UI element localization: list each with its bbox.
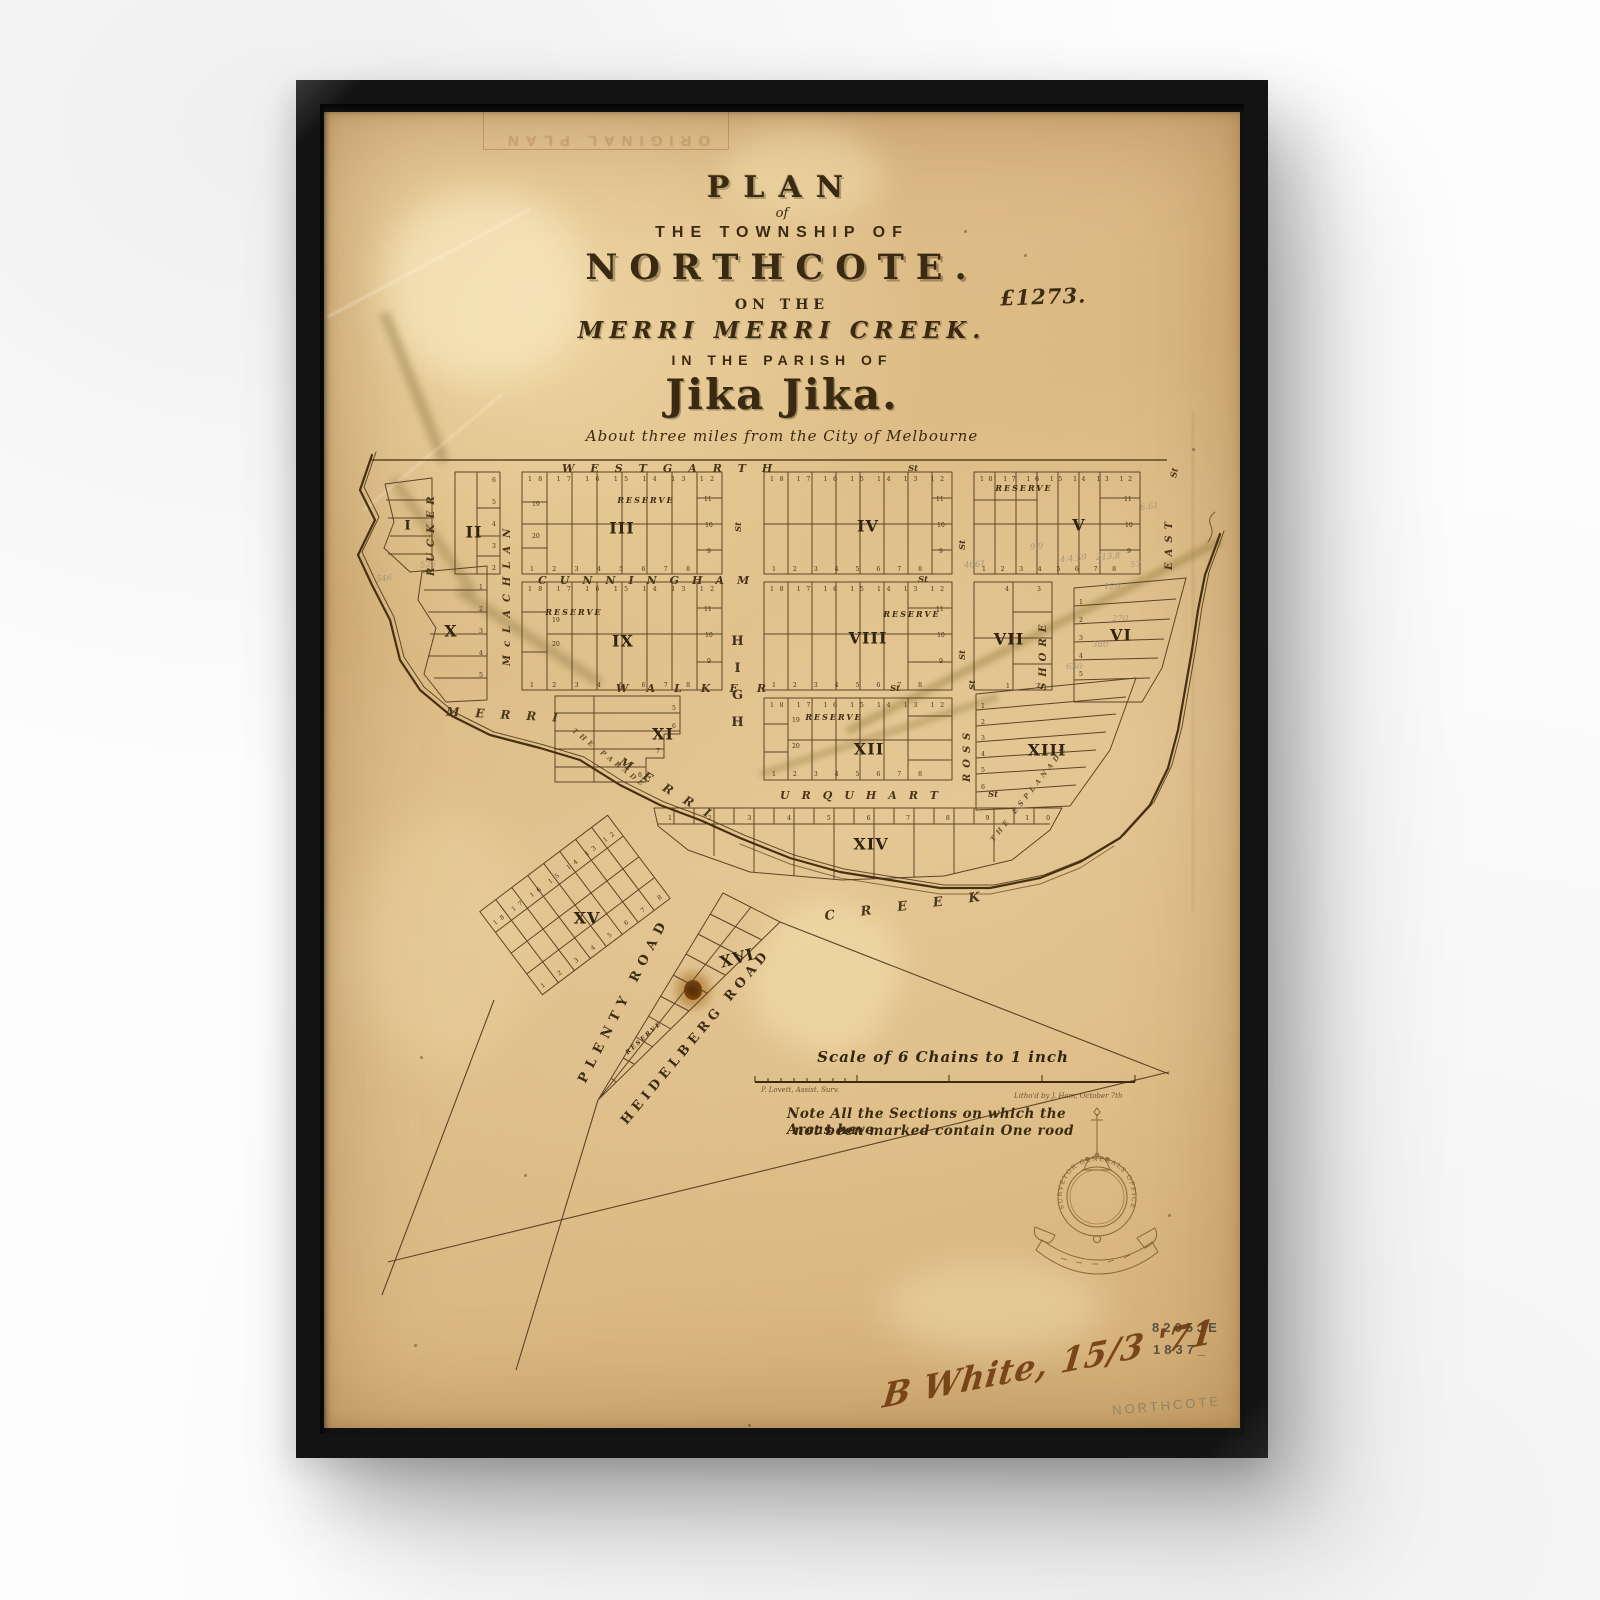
lot-number: 5 — [672, 705, 676, 712]
speck — [420, 1056, 423, 1059]
paper-stain — [884, 1262, 1104, 1352]
paper-crease — [327, 208, 531, 318]
street-high-st: St — [734, 522, 744, 532]
lot-number: 5 — [492, 499, 496, 506]
lot-number: 10 — [705, 632, 713, 639]
lot-number: 9 — [939, 548, 943, 555]
lot-number: 9 — [1127, 548, 1131, 555]
speck — [524, 1174, 527, 1177]
reserve-label: RESERVE — [883, 609, 940, 619]
lot-number: 3 — [981, 735, 985, 742]
section-VII: VII — [994, 630, 1024, 649]
section-IX: IX — [612, 632, 634, 651]
map-paper: ORIGINAL PLAN PLAN of THE TOWNSHIP OF NO… — [324, 112, 1240, 1428]
lot-number: 20 — [532, 533, 540, 540]
lot-number: 10 — [937, 522, 945, 529]
road-the-parade: THE PARADE — [570, 726, 648, 790]
lot-number: 3 — [492, 543, 496, 550]
creek-label-merri-1: MERRI — [446, 705, 575, 726]
section-VIII: VIII — [849, 629, 888, 648]
ink-signature: B White, 15/3 '71 — [881, 1311, 1217, 1416]
lot-row: 1 2 3 4 5 6 7 8 — [772, 771, 922, 778]
lot-number: 1 — [479, 584, 483, 591]
speck — [414, 1344, 417, 1347]
lot-row: 18 17 16 15 14 13 12 — [528, 476, 714, 483]
seal-crown — [1082, 1156, 1112, 1170]
lot-number: 3 — [1079, 635, 1083, 642]
block-I — [384, 478, 432, 572]
road-plenty: PLENTY ROAD — [575, 914, 672, 1085]
lot-number: 5 — [479, 672, 483, 679]
block-VIII — [764, 582, 952, 690]
lot-number: 9 — [707, 548, 711, 555]
lot-number: 5 — [1079, 671, 1083, 678]
section-XV: XV — [574, 909, 601, 928]
lot-number: 8 — [638, 772, 642, 779]
lot-number: 19 — [532, 501, 540, 508]
reserve-label: RESERVE — [545, 607, 602, 617]
section-XIII: XIII — [1028, 741, 1067, 760]
section-I: I — [404, 519, 411, 534]
block-VI — [1074, 578, 1186, 702]
speck — [964, 230, 967, 233]
lot-number: 4 — [1079, 653, 1083, 660]
seal-ring-inner — [1067, 1167, 1127, 1227]
street-shore: SHORE — [1038, 606, 1049, 690]
lot-number: 10 — [937, 632, 945, 639]
graphite-note: 4661 — [964, 559, 986, 570]
street-westgarth-st: St — [908, 464, 918, 474]
title-subtitle: About three miles from the City of Melbo… — [324, 427, 1240, 445]
olive-streak — [845, 537, 1223, 735]
lot-number: 1 — [1079, 599, 1083, 606]
lot-row: 18 17 16 15 14 13 12 — [770, 476, 944, 483]
lot-number: 9 — [939, 658, 943, 665]
graphite-note: 4.4.59 — [1060, 553, 1088, 565]
title-of: of — [324, 206, 1240, 221]
lot-row: 1 2 3 4 5 6 7 8 — [530, 566, 690, 573]
lot-number: 5 — [981, 767, 985, 774]
paper-stain — [731, 879, 921, 1074]
paper-stain — [384, 192, 584, 382]
block-II — [455, 472, 500, 574]
lot-number: 2 — [1036, 683, 1040, 690]
graphite-note: 546 — [376, 573, 393, 585]
seal-ring-text: SURVEYOR GENERALS OFFICE — [1056, 1155, 1138, 1211]
lot-number: 10 — [705, 522, 713, 529]
lot-number: 11 — [1124, 496, 1132, 503]
graphite-note: 213,8 — [1096, 551, 1121, 563]
section-X: X — [444, 622, 457, 641]
lot-number: 19 — [792, 717, 800, 724]
title-plan: PLAN — [324, 170, 1240, 205]
seal-ring-text-path: SURVEYOR GENERALS OFFICE — [1056, 1155, 1138, 1211]
lot-row: 1 2 3 4 5 6 7 8 — [540, 894, 664, 990]
lot-number: 7 — [656, 748, 660, 755]
lot-number: 11 — [936, 496, 944, 503]
street-ross-st: St — [968, 680, 978, 690]
block-VII — [974, 582, 1052, 690]
block-IV — [764, 472, 952, 574]
section-VI: VI — [1110, 626, 1132, 645]
section-II: II — [466, 523, 483, 542]
speck — [1024, 254, 1027, 257]
block-III — [522, 472, 722, 574]
seal-ribbon-lettering — [1061, 1255, 1130, 1264]
street-unnamed-st: St — [958, 650, 968, 660]
lot-row: 1 2 3 4 5 6 7 8 — [982, 566, 1116, 573]
year-stamp: 1837_ — [1153, 1342, 1209, 1357]
lot-number: 6 — [492, 477, 496, 484]
lithographer-credit: Litho'd by J. Ham, October 7th — [1014, 1092, 1122, 1100]
block-XVI — [598, 893, 780, 1100]
creek-smudge — [455, 586, 602, 686]
block-XII — [764, 698, 952, 780]
street-rucker: RUCKER — [426, 488, 437, 576]
map-note-line2: not been marked contain One rood — [794, 1123, 1074, 1139]
paper-crease — [1192, 412, 1194, 912]
section-III: III — [609, 519, 634, 538]
street-urquhart: URQUHART — [780, 789, 950, 802]
lot-row: 18 17 16 15 14 13 12 — [980, 476, 1132, 483]
section-XIV: XIV — [853, 835, 888, 854]
block-XIV — [654, 808, 1062, 880]
ink-spot — [684, 980, 702, 1000]
reserve-label: RESERVE — [805, 712, 862, 722]
street-cunningham: CUNNINGHAM — [538, 574, 762, 587]
graphite-note: 525 — [420, 559, 437, 570]
street-walker: WALKER — [616, 682, 785, 695]
surveyor-credit: P. Lovett, Assist. Surv. — [761, 1086, 839, 1094]
reserve-label: RESERVE — [617, 495, 674, 505]
street-cunningham-st: St — [918, 575, 928, 585]
block-XIII — [976, 678, 1136, 810]
lot-number: 11 — [704, 496, 712, 503]
lot-number: 2 — [479, 606, 483, 613]
section-IV: IV — [857, 517, 879, 536]
lot-number: 10 — [1125, 522, 1133, 529]
lot-number: 4 — [479, 650, 483, 657]
lot-number: 4 — [492, 521, 496, 528]
product-photo: ORIGINAL PLAN PLAN of THE TOWNSHIP OF NO… — [0, 0, 1600, 1600]
speck — [748, 1424, 751, 1427]
merri-creek-line — [358, 452, 1224, 894]
block-XV — [480, 815, 670, 994]
lot-row: 1 2 3 4 5 6 7 8 — [530, 682, 690, 689]
lot-number: 4 — [1005, 586, 1009, 593]
creek-smudge — [379, 311, 448, 463]
lot-number: 9 — [707, 658, 711, 665]
picture-frame: ORIGINAL PLAN PLAN of THE TOWNSHIP OF NO… — [296, 80, 1268, 1458]
title-northcote: NORTHCOTE. — [324, 247, 1240, 288]
lot-number: 3 — [1037, 586, 1041, 593]
olive-streak — [759, 694, 999, 778]
graphite-note: 120 — [1104, 582, 1120, 592]
lot-number: 2 — [1079, 617, 1083, 624]
lot-row: 18 17 16 15 14 13 12 — [770, 702, 944, 709]
title-jika-jika: Jika Jika. — [324, 370, 1240, 419]
street-urquhart-st: St — [988, 790, 998, 800]
lot-number: 11 — [704, 606, 712, 613]
block-X — [418, 566, 487, 702]
paper-stain — [354, 812, 534, 1072]
road-lines — [382, 922, 1169, 1370]
graphite-note: 6.61 — [1139, 501, 1159, 514]
lot-numbers: 18 17 16 15 14 13 12 1 2 3 4 5 6 7 8 18 … — [479, 476, 1133, 990]
grid-lines — [370, 460, 1186, 1370]
creek-smudge — [390, 477, 478, 597]
lot-number: 4 — [981, 751, 985, 758]
map-title-block: PLAN of THE TOWNSHIP OF NORTHCOTE. ON TH… — [324, 170, 1240, 445]
speck — [654, 274, 657, 277]
scale-title: Scale of 6 Chains to 1 inch — [817, 1048, 1069, 1066]
archive-stamp-text: ORIGINAL PLAN — [501, 124, 710, 149]
street-east-st: St — [1169, 467, 1181, 479]
graphite-note: 57 — [1130, 560, 1141, 570]
lot-row: 1 2 3 4 5 6 7 8 — [772, 682, 922, 689]
road-heidelberg: HEIDELBERG ROAD — [618, 946, 774, 1128]
lot-row: 1 2 3 4 5 6 7 8 — [772, 566, 922, 573]
archive-stamp: ORIGINAL PLAN — [483, 112, 729, 150]
title-township: THE TOWNSHIP OF — [324, 224, 1240, 242]
lot-number: 19 — [552, 617, 560, 624]
seal-tassel — [1094, 1236, 1101, 1243]
street-unnamed-st: St — [958, 540, 968, 550]
graphite-note: 270 — [1112, 614, 1128, 624]
lot-number: 11 — [936, 606, 944, 613]
lot-number: 3 — [479, 628, 483, 635]
lot-row: 18 17 16 15 14 13 12 — [770, 586, 944, 593]
reserve-label: RESERVE — [624, 1020, 663, 1056]
section-XI: XI — [652, 725, 674, 744]
scale-bar — [755, 1075, 1135, 1082]
creek-label-creek: CREEK — [824, 887, 1007, 924]
lot-row: 18 17 16 15 14 13 12 — [492, 831, 616, 927]
graphite-note: 9.9 — [1030, 541, 1045, 552]
map-note-line1: Note All the Sections on which the Areas… — [787, 1106, 1089, 1138]
lot-number: 2 — [981, 719, 985, 726]
street-ross: ROSS — [962, 694, 973, 782]
lot-number: 2 — [492, 565, 496, 572]
map-drawing: 18 17 16 15 14 13 12 1 2 3 4 5 6 7 8 18 … — [324, 112, 1240, 1428]
road-the-esplanade: THE ESPLANADE — [988, 743, 1069, 844]
seal-finial — [1094, 1108, 1100, 1116]
title-parish: IN THE PARISH OF — [324, 352, 1240, 368]
creek-label-merri-2: MERRI — [617, 755, 725, 828]
speck — [1168, 1214, 1171, 1217]
street-walker-st: St — [890, 684, 900, 694]
ink-spot-halo — [676, 972, 710, 1008]
seal-ring-outer — [1058, 1158, 1136, 1236]
file-number-stamp: 8205JE — [1152, 1320, 1221, 1335]
section-XVI: XVI — [717, 944, 756, 971]
block-XI — [555, 696, 680, 782]
block-V — [974, 472, 1140, 574]
pencil-annotation-northcote: NORTHCOTE — [1112, 1393, 1222, 1417]
lot-number: 1 — [981, 703, 985, 710]
title-merri-creek: MERRI MERRI CREEK. — [324, 317, 1240, 344]
plate-number: £1273. — [1000, 283, 1087, 311]
lot-number: 1 — [1006, 683, 1010, 690]
seal-ribbon — [1036, 1240, 1158, 1274]
section-V: V — [1072, 516, 1085, 535]
seal-ribbon-tails — [1034, 1227, 1156, 1248]
street-westgarth: WESTGARTH — [562, 462, 788, 475]
street-east: EAST — [1164, 484, 1175, 570]
block-IX — [522, 582, 722, 690]
paper-crease — [362, 394, 501, 511]
street-mclachlan: McLACHLAN — [502, 478, 513, 666]
surveyor-general-seal: SURVEYOR GENERALS OFFICE — [1034, 1108, 1158, 1274]
lot-number: 6 — [981, 784, 985, 791]
street-high: HIGH — [730, 634, 745, 774]
lot-number: 20 — [792, 743, 800, 750]
reserve-label: RESERVE — [995, 483, 1052, 493]
speck — [1192, 448, 1195, 451]
graphite-note: 630 — [1066, 662, 1082, 672]
lot-row: 1 2 3 4 5 6 7 8 9 10 — [668, 815, 1050, 822]
section-XII: XII — [854, 740, 884, 759]
lot-row: 18 17 16 15 14 13 12 — [528, 586, 714, 593]
title-on-the: ON THE — [324, 297, 1240, 313]
graphite-note: 380 — [1092, 640, 1108, 650]
lot-number: 20 — [552, 641, 560, 648]
paper-stain — [724, 130, 884, 220]
lot-number: 6 — [672, 723, 676, 730]
